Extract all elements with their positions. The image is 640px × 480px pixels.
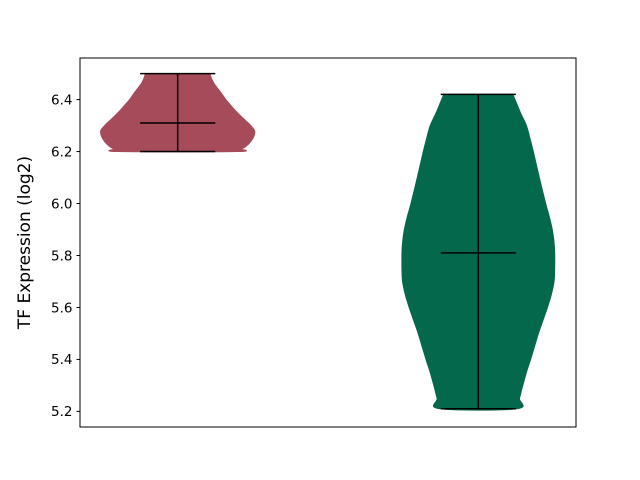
y-tick-label: 5.8 (51, 248, 72, 264)
y-tick-label: 6.2 (51, 144, 72, 160)
y-tick-label: 5.4 (51, 352, 72, 368)
y-tick-label: 5.2 (51, 404, 72, 420)
violin-plot-svg: 6.46.26.05.85.65.45.2TF Expression (log2… (0, 0, 640, 480)
y-axis-label: TF Expression (log2) (15, 156, 35, 330)
y-tick-label: 5.6 (51, 300, 72, 316)
y-tick-label: 6.0 (51, 196, 72, 212)
y-tick-label: 6.4 (51, 92, 72, 108)
figure: 6.46.26.05.85.65.45.2TF Expression (log2… (0, 0, 640, 480)
